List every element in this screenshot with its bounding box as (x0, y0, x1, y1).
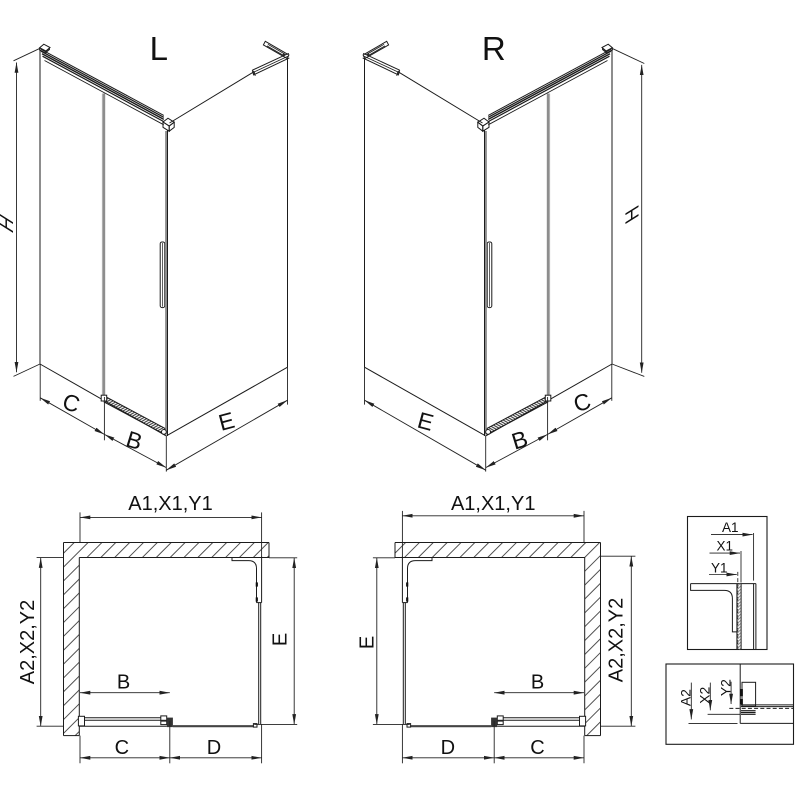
svg-text:A1: A1 (722, 520, 739, 535)
svg-text:Y1: Y1 (711, 561, 728, 576)
svg-text:B: B (509, 425, 531, 454)
svg-text:E: E (216, 407, 238, 436)
svg-text:H: H (622, 201, 643, 228)
svg-text:Y2: Y2 (717, 679, 733, 696)
svg-text:X1: X1 (717, 539, 734, 554)
svg-text:B: B (123, 426, 145, 455)
svg-text:C: C (570, 387, 594, 417)
svg-text:B: B (531, 672, 544, 694)
svg-text:L: L (150, 30, 168, 67)
svg-text:A2,X2,Y2: A2,X2,Y2 (606, 598, 628, 683)
svg-text:D: D (441, 737, 455, 759)
svg-text:R: R (482, 30, 506, 67)
svg-text:A2,X2,Y2: A2,X2,Y2 (17, 600, 39, 685)
svg-text:E: E (415, 407, 437, 436)
svg-text:A1,X1,Y1: A1,X1,Y1 (128, 493, 213, 515)
svg-text:A1,X1,Y1: A1,X1,Y1 (451, 493, 536, 515)
svg-text:B: B (117, 672, 130, 694)
svg-text:E: E (357, 636, 379, 649)
svg-text:E: E (270, 633, 292, 646)
svg-text:C: C (115, 737, 129, 759)
svg-text:D: D (207, 737, 221, 759)
svg-text:H: H (0, 210, 18, 237)
svg-text:C: C (60, 388, 84, 418)
svg-text:C: C (530, 737, 544, 759)
svg-text:X2: X2 (697, 687, 713, 704)
svg-text:A2: A2 (677, 689, 693, 706)
